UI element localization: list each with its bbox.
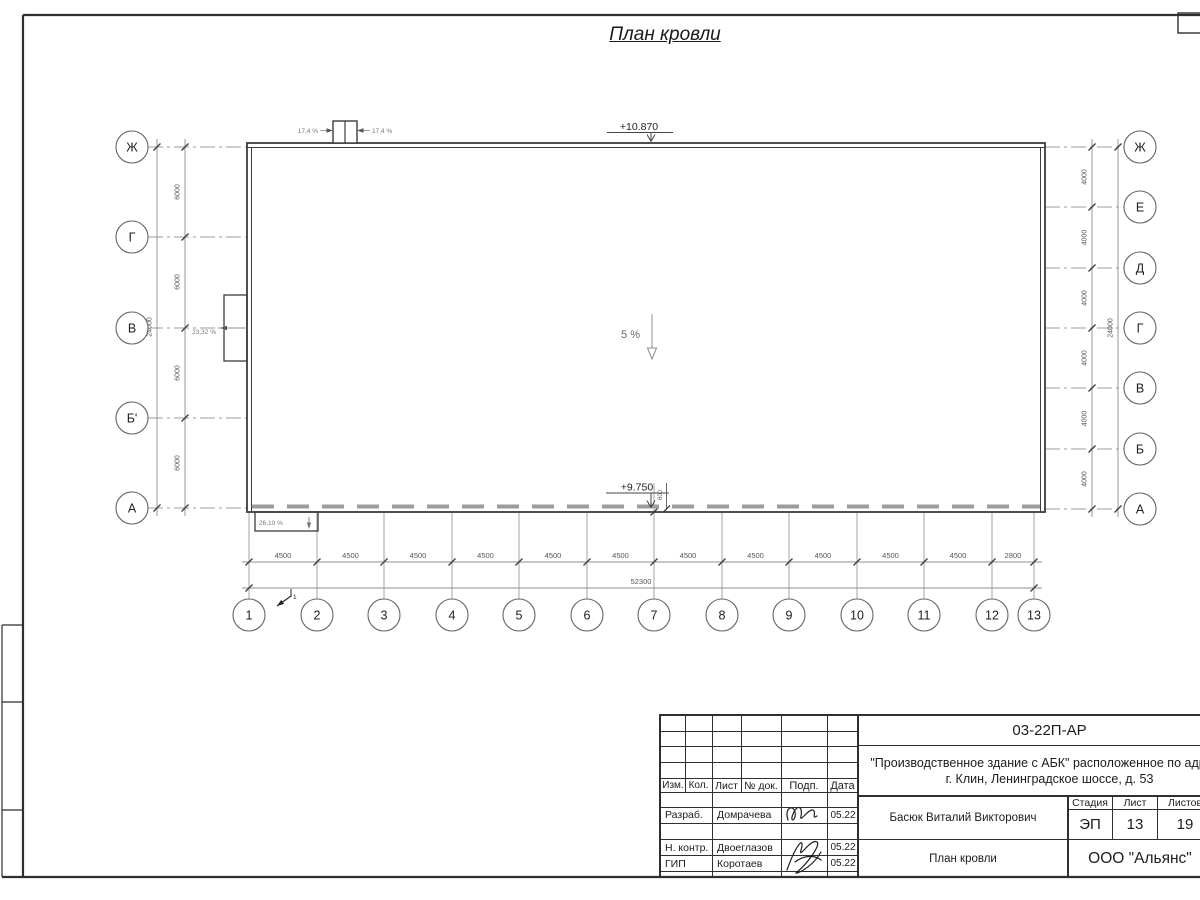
svg-text:2: 2 — [314, 609, 321, 623]
signature-domracheva — [787, 807, 817, 820]
rev-header-kol: Кол. — [685, 778, 712, 793]
svg-text:Д: Д — [1136, 262, 1145, 276]
sheet-header: Лист — [1113, 796, 1157, 809]
dim-left: 6000 — [175, 365, 182, 381]
dim-bottom: 4500 — [882, 551, 899, 560]
sig-name: Коротаев — [714, 856, 780, 871]
dim-bottom: 4500 — [477, 551, 494, 560]
project-name-line2: г. Клин, Ленинградское шоссе, д. 53 — [946, 771, 1154, 787]
dim-bottom: 4500 — [410, 551, 427, 560]
project-name-line1: "Производственное здание с АБК" располож… — [870, 755, 1200, 771]
dim-parapet-offset: 600 — [658, 489, 664, 500]
svg-text:А: А — [128, 502, 137, 516]
rev-header-izm: Изм. — [661, 778, 685, 793]
dim-bottom-total: 52300 — [631, 577, 652, 586]
svg-text:7: 7 — [651, 609, 658, 623]
sheet-number: 13 — [1113, 810, 1157, 839]
sig-date: 05.22 — [828, 856, 858, 871]
svg-text:Г: Г — [1137, 322, 1144, 336]
svg-text:Б': Б' — [127, 412, 138, 426]
doc-number: 03-22П-АР — [859, 716, 1200, 745]
signatures — [781, 798, 827, 878]
stage-header: Стадия — [1068, 796, 1112, 809]
sheet-title: План кровли — [540, 24, 790, 46]
sheets-header: Листов — [1158, 796, 1200, 809]
slope-direction-arrow — [648, 348, 657, 359]
svg-text:Ж: Ж — [126, 141, 138, 155]
dim-bottom: 2800 — [1005, 551, 1022, 560]
svg-text:4: 4 — [449, 609, 456, 623]
rev-header-data: Дата — [827, 778, 858, 793]
axis-bubbles — [116, 131, 1156, 631]
dim-bottom: 4500 — [815, 551, 832, 560]
dimension-lines — [157, 139, 1118, 588]
view-marker-label: 1 — [293, 594, 297, 601]
rev-header-doc: № док. — [741, 778, 781, 793]
svg-text:Б: Б — [1136, 443, 1144, 457]
dim-right: 4000 — [1082, 230, 1089, 246]
dimension-labels: 6000 6000 6000 6000 24000 4000 4000 4000… — [147, 169, 1115, 586]
sig-role: Разраб. — [662, 807, 712, 823]
drawing-sheet: 6000 6000 6000 6000 24000 4000 4000 4000… — [0, 0, 1200, 900]
svg-text:12: 12 — [985, 609, 999, 623]
dimension-ticks — [154, 144, 1122, 592]
svg-text:В: В — [1136, 382, 1144, 396]
sig-name: Двоеглазов — [714, 840, 780, 855]
rev-header-list: Лист — [712, 778, 741, 793]
svg-text:3: 3 — [381, 609, 388, 623]
dim-bottom: 4500 — [342, 551, 359, 560]
dim-right-total: 24000 — [1108, 318, 1115, 338]
svg-text:6: 6 — [584, 609, 591, 623]
approver-name: Басюк Виталий Викторович — [859, 797, 1067, 839]
elevation-roof-top: +10.870 — [620, 121, 658, 133]
slope-center-label: 5 % — [621, 329, 640, 341]
svg-text:А: А — [1136, 503, 1145, 517]
slope-west-wall-label: 23,32 % — [192, 329, 216, 336]
svg-text:Ж: Ж — [1134, 141, 1146, 155]
sig-date: 05.22 — [828, 840, 858, 855]
signature-korotaev — [787, 842, 821, 874]
dim-right: 4000 — [1082, 350, 1089, 366]
dim-bottom: 4500 — [747, 551, 764, 560]
dim-left: 6000 — [175, 184, 182, 200]
svg-text:8: 8 — [719, 609, 726, 623]
project-name: "Производственное здание с АБК" располож… — [859, 747, 1200, 795]
dim-left: 6000 — [175, 455, 182, 471]
dim-right: 4000 — [1082, 290, 1089, 306]
dim-right: 4000 — [1082, 169, 1089, 185]
svg-text:1: 1 — [246, 609, 253, 623]
dim-bottom: 4500 — [950, 551, 967, 560]
dim-right: 4000 — [1082, 411, 1089, 427]
slope-hatch-right-label: 17,4 % — [372, 128, 392, 135]
dim-bottom: 4500 — [275, 551, 292, 560]
slope-south-canopy-label: 26,10 % — [259, 520, 283, 527]
drawing-title: План кровли — [859, 841, 1067, 877]
dim-bottom: 4500 — [612, 551, 629, 560]
company-name: ООО "Альянс" — [1068, 841, 1200, 877]
svg-text:5: 5 — [516, 609, 523, 623]
dim-bottom: 4500 — [680, 551, 697, 560]
sig-role: Н. контр. — [662, 840, 712, 855]
annotations: 17,4 % 17,4 % 23,32 % 26,10 % +10.870 +9… — [192, 121, 673, 606]
svg-text:11: 11 — [918, 609, 931, 623]
rev-header-podp: Подп. — [781, 778, 827, 793]
svg-text:9: 9 — [786, 609, 793, 623]
dim-right: 4000 — [1082, 471, 1089, 487]
slope-hatch-left-label: 17,4 % — [298, 128, 318, 135]
svg-text:Г: Г — [129, 231, 136, 245]
svg-text:13: 13 — [1027, 609, 1041, 623]
svg-text:В: В — [128, 322, 136, 336]
svg-text:Е: Е — [1136, 201, 1144, 215]
elevation-roof-low: +9.750 — [621, 482, 654, 494]
sig-name: Домрачева — [714, 807, 780, 823]
sig-role: ГИП — [662, 856, 712, 871]
dim-left: 6000 — [175, 274, 182, 290]
stage-value: ЭП — [1068, 810, 1112, 839]
sig-date: 05.22 — [828, 807, 858, 823]
svg-text:10: 10 — [850, 609, 864, 623]
building-outline — [224, 121, 1045, 531]
sheets-total: 19 — [1158, 810, 1200, 839]
dim-bottom: 4500 — [545, 551, 562, 560]
